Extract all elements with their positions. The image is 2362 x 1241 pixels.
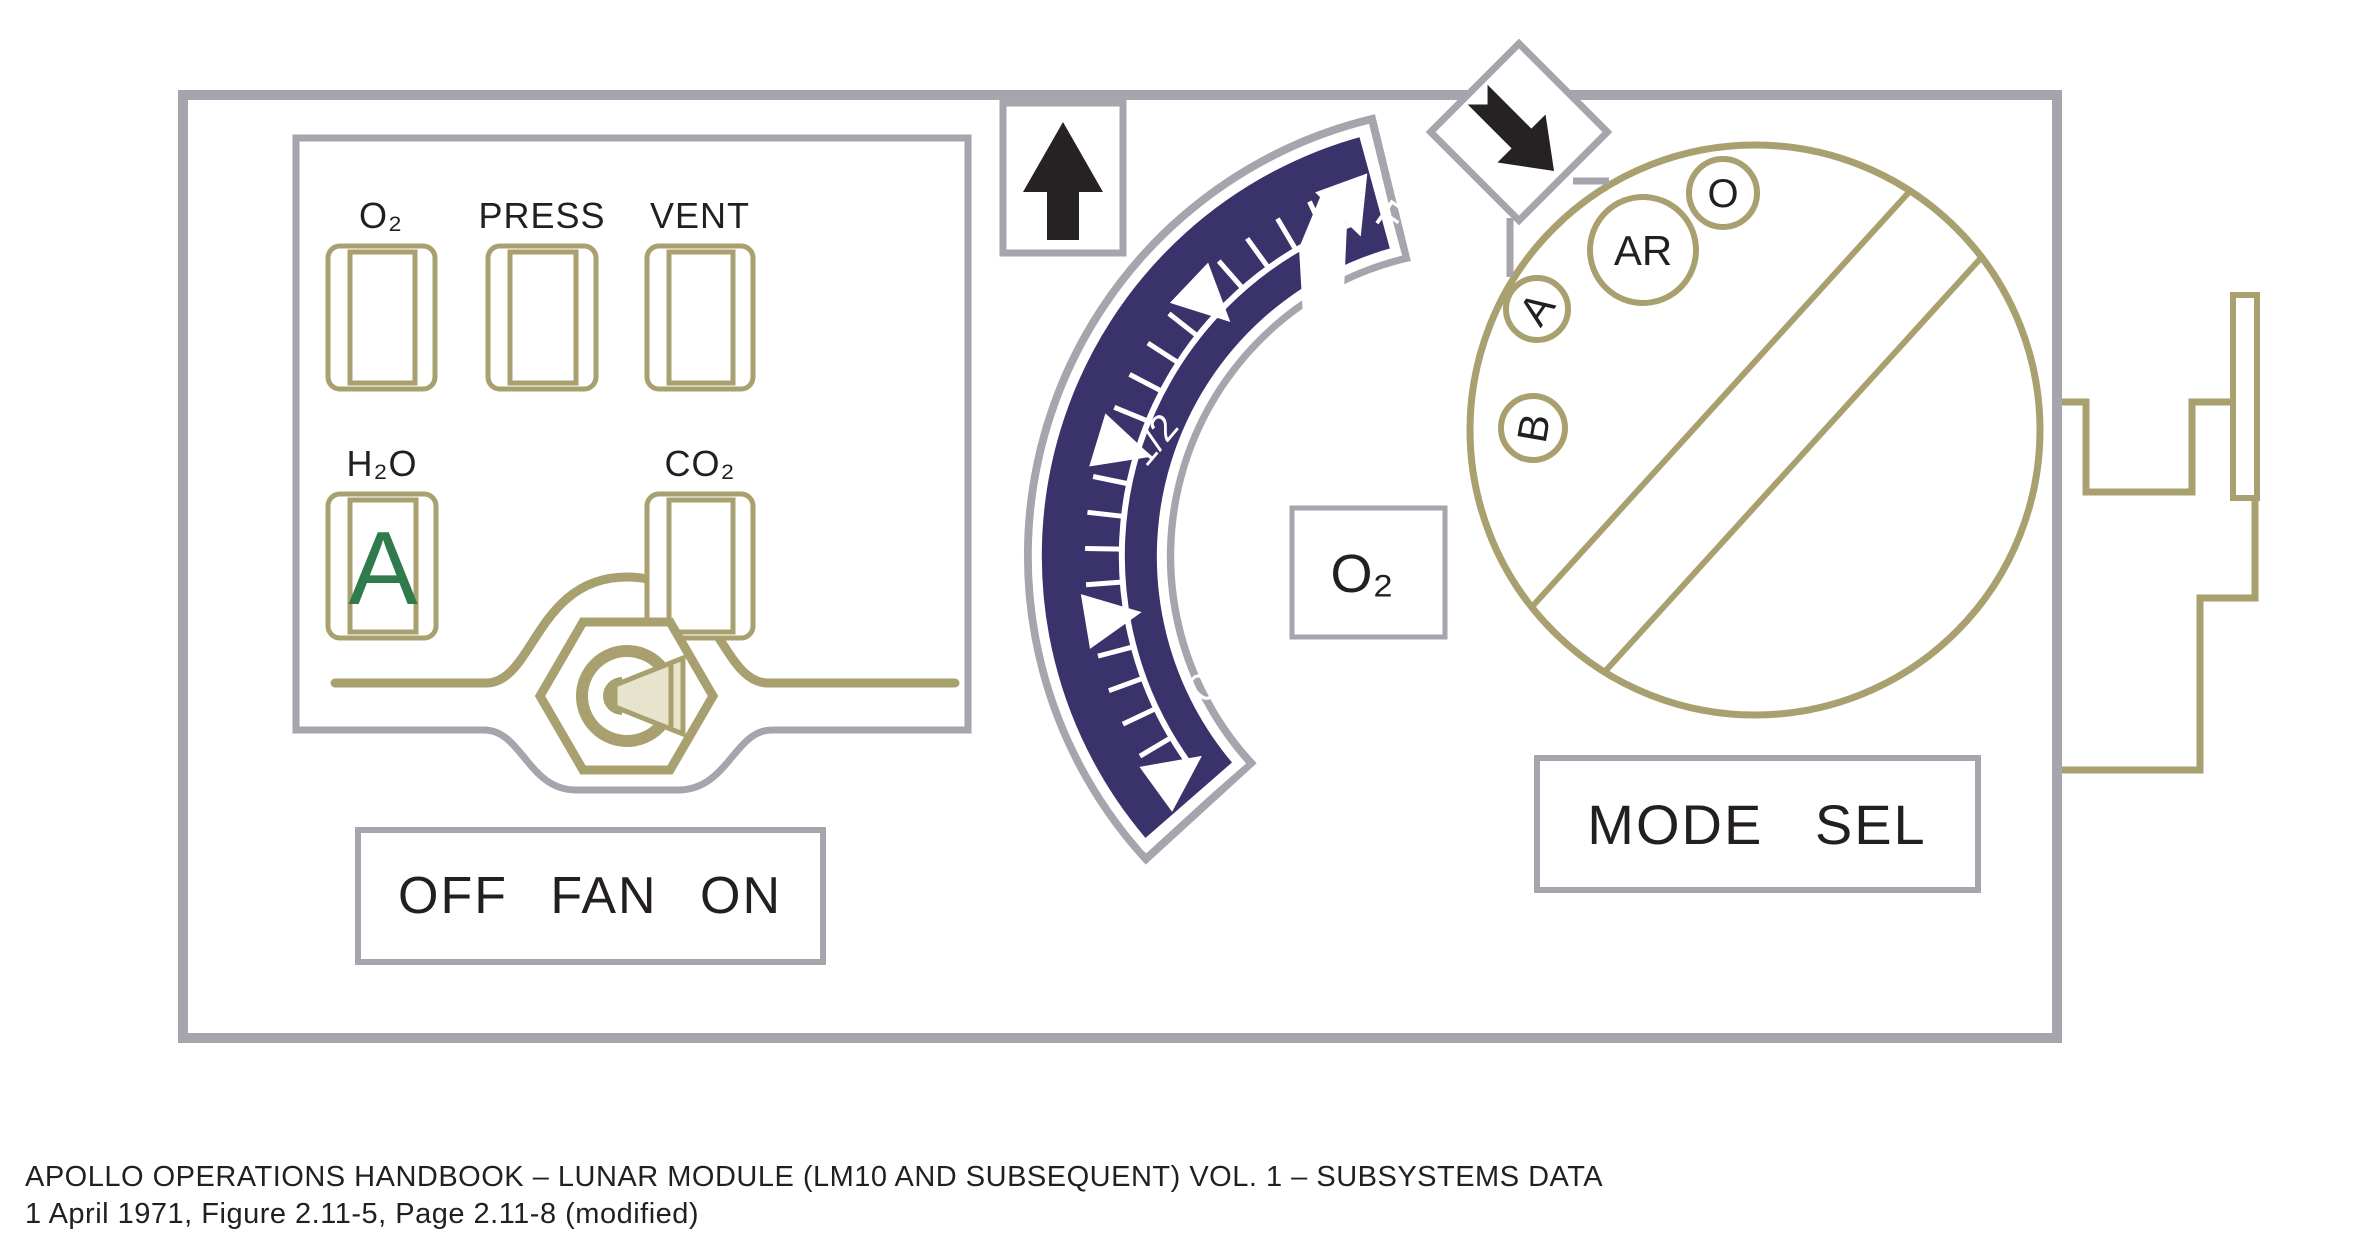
indicator-vent-window [669, 252, 733, 383]
h2o-flag-a: A [348, 511, 418, 627]
fan-switch-plate: OFF FAN ON [358, 830, 823, 962]
connector-step-upper [2062, 402, 2233, 492]
indicator-vent-label: VENT [650, 195, 750, 236]
mode-sel-plate: MODE SEL [1537, 758, 1978, 890]
fan-switch-label: OFF FAN ON [398, 867, 782, 925]
caption-line-1: APOLLO OPERATIONS HANDBOOK – LUNAR MODUL… [25, 1161, 1603, 1193]
gauge-tick [1085, 548, 1122, 549]
indicator-press: PRESS [478, 195, 605, 389]
indicator-press-window [510, 252, 576, 383]
indicator-h2o-label: H₂O [347, 443, 418, 484]
indicator-o2-window [350, 252, 415, 383]
gauge-unit-label: O₂ [1331, 544, 1394, 604]
indicator-co2-label: CO₂ [665, 443, 736, 484]
right-connector-profile [2062, 295, 2257, 770]
mode-position-o-label: O [1707, 172, 1738, 216]
indicator-co2-window [669, 500, 733, 632]
caption-line-2: 1 April 1971, Figure 2.11-5, Page 2.11-8… [25, 1198, 699, 1230]
indicator-vent: VENT [647, 195, 753, 389]
page: O₂ PRESS VENT H₂O A CO₂ OFF FAN ON [0, 0, 2362, 1241]
gauge-tick [1086, 582, 1123, 585]
indicator-press-label: PRESS [478, 195, 605, 236]
gauge-unit-callout: O₂ [1292, 508, 1445, 637]
mode-sel-label: MODE SEL [1587, 793, 1926, 856]
mode-position-ar-label: AR [1614, 227, 1672, 274]
fan-knob [540, 622, 713, 770]
indicator-o2-label: O₂ [359, 195, 403, 236]
connector-pin [2233, 295, 2257, 498]
up-arrow-callout [1003, 103, 1123, 253]
connector-step-lower [2062, 498, 2255, 770]
